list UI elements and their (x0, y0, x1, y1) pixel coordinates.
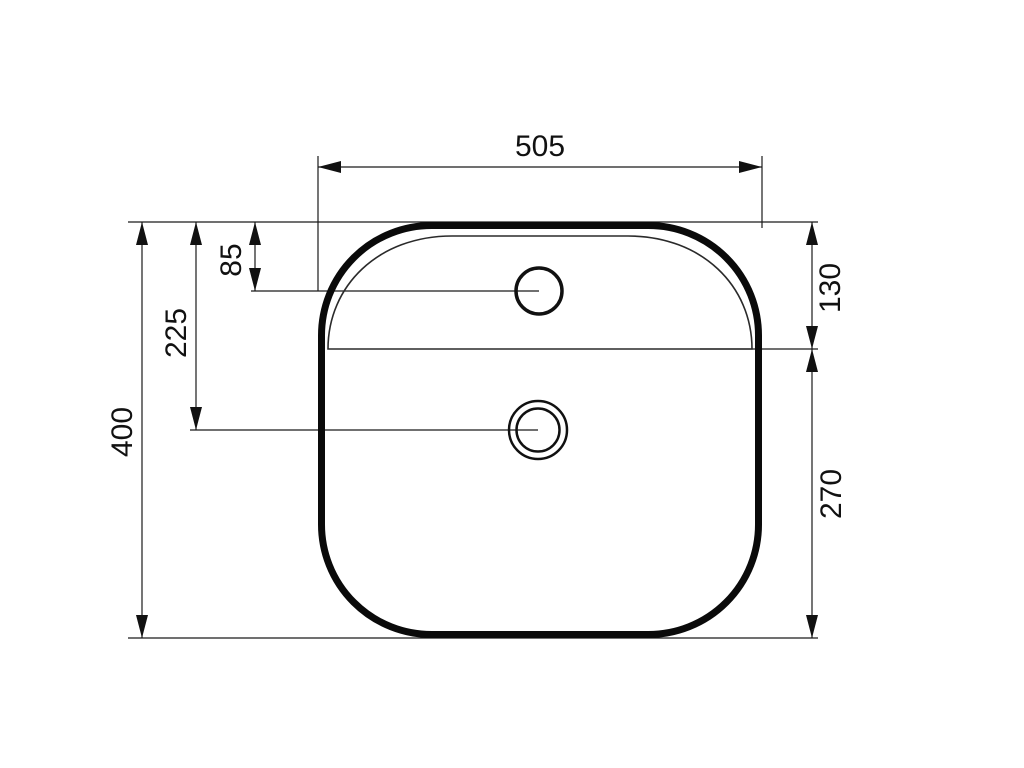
arrow-down-icon (136, 615, 148, 638)
arrow-right-icon (739, 161, 762, 173)
arrow-up-icon (806, 222, 818, 245)
arrow-up-icon (136, 222, 148, 245)
arrow-up-icon (249, 222, 261, 245)
arrow-left-icon (318, 161, 341, 173)
dim-rim-offset-label: 130 (814, 263, 847, 313)
arrow-down-icon (806, 615, 818, 638)
arrow-down-icon (190, 407, 202, 430)
dim-bottom-section-label: 270 (815, 469, 848, 519)
dim-drain-offset-group: 225 (160, 222, 202, 430)
arrow-up-icon (190, 222, 202, 245)
dim-tap-offset-label: 85 (215, 243, 248, 276)
dim-drain-offset-label: 225 (160, 308, 193, 358)
dim-depth-group: 400 (106, 222, 148, 638)
dim-tap-offset-group: 85 (215, 222, 261, 291)
arrow-up-icon (806, 349, 818, 372)
washbasin-dimension-drawing: 505 400 225 85 130 (0, 0, 1024, 768)
dim-bottom-section-group: 270 (806, 349, 848, 638)
arrow-down-icon (806, 326, 818, 349)
dim-width-group: 505 (318, 130, 762, 173)
technical-drawing-canvas: 505 400 225 85 130 (0, 0, 1024, 768)
dim-width-label: 505 (515, 130, 565, 163)
dim-rim-offset-group: 130 (806, 222, 847, 349)
basin-inner-rim (328, 236, 752, 349)
arrow-down-icon (249, 268, 261, 291)
dim-depth-label: 400 (106, 407, 139, 457)
